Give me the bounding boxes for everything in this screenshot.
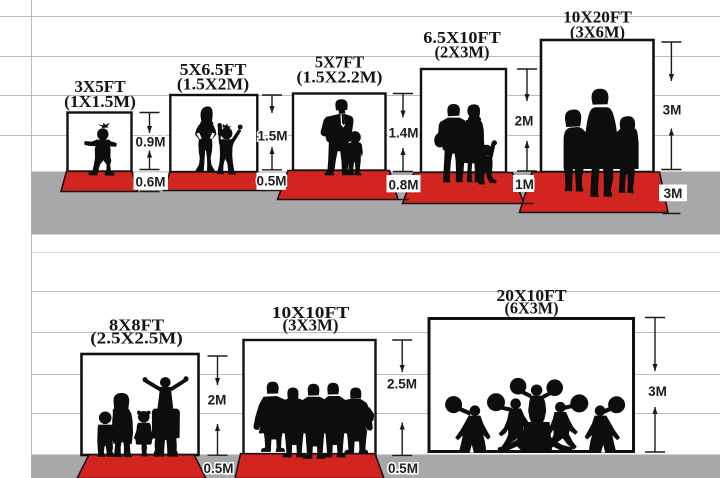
svg-text:0.8M: 0.8M bbox=[388, 177, 418, 192]
svg-text:(2X3M): (2X3M) bbox=[435, 43, 490, 62]
svg-text:(3X3M): (3X3M) bbox=[283, 316, 339, 335]
svg-text:(2.5X2.5M): (2.5X2.5M) bbox=[90, 329, 183, 348]
svg-text:0.5M: 0.5M bbox=[388, 461, 418, 476]
svg-text:1.4M: 1.4M bbox=[388, 126, 418, 141]
svg-text:(1X1.5M): (1X1.5M) bbox=[64, 92, 136, 111]
svg-text:3M: 3M bbox=[663, 103, 682, 118]
svg-text:0.5M: 0.5M bbox=[256, 174, 286, 189]
svg-text:(6X3M): (6X3M) bbox=[505, 299, 559, 318]
svg-text:3M: 3M bbox=[664, 186, 683, 201]
svg-text:1.5M: 1.5M bbox=[257, 129, 287, 144]
svg-text:3M: 3M bbox=[648, 384, 667, 399]
svg-text:2.5M: 2.5M bbox=[387, 377, 417, 392]
svg-text:1M: 1M bbox=[515, 177, 534, 192]
svg-text:2M: 2M bbox=[515, 114, 534, 129]
svg-text:0.5M: 0.5M bbox=[203, 461, 233, 476]
svg-text:(3X6M): (3X6M) bbox=[570, 23, 625, 42]
svg-text:2M: 2M bbox=[208, 393, 227, 408]
svg-text:0.6M: 0.6M bbox=[135, 175, 165, 190]
svg-text:(1.5X2.2M): (1.5X2.2M) bbox=[297, 68, 383, 87]
svg-text:0.9M: 0.9M bbox=[135, 135, 165, 150]
svg-text:(1.5X2M): (1.5X2M) bbox=[177, 75, 249, 94]
